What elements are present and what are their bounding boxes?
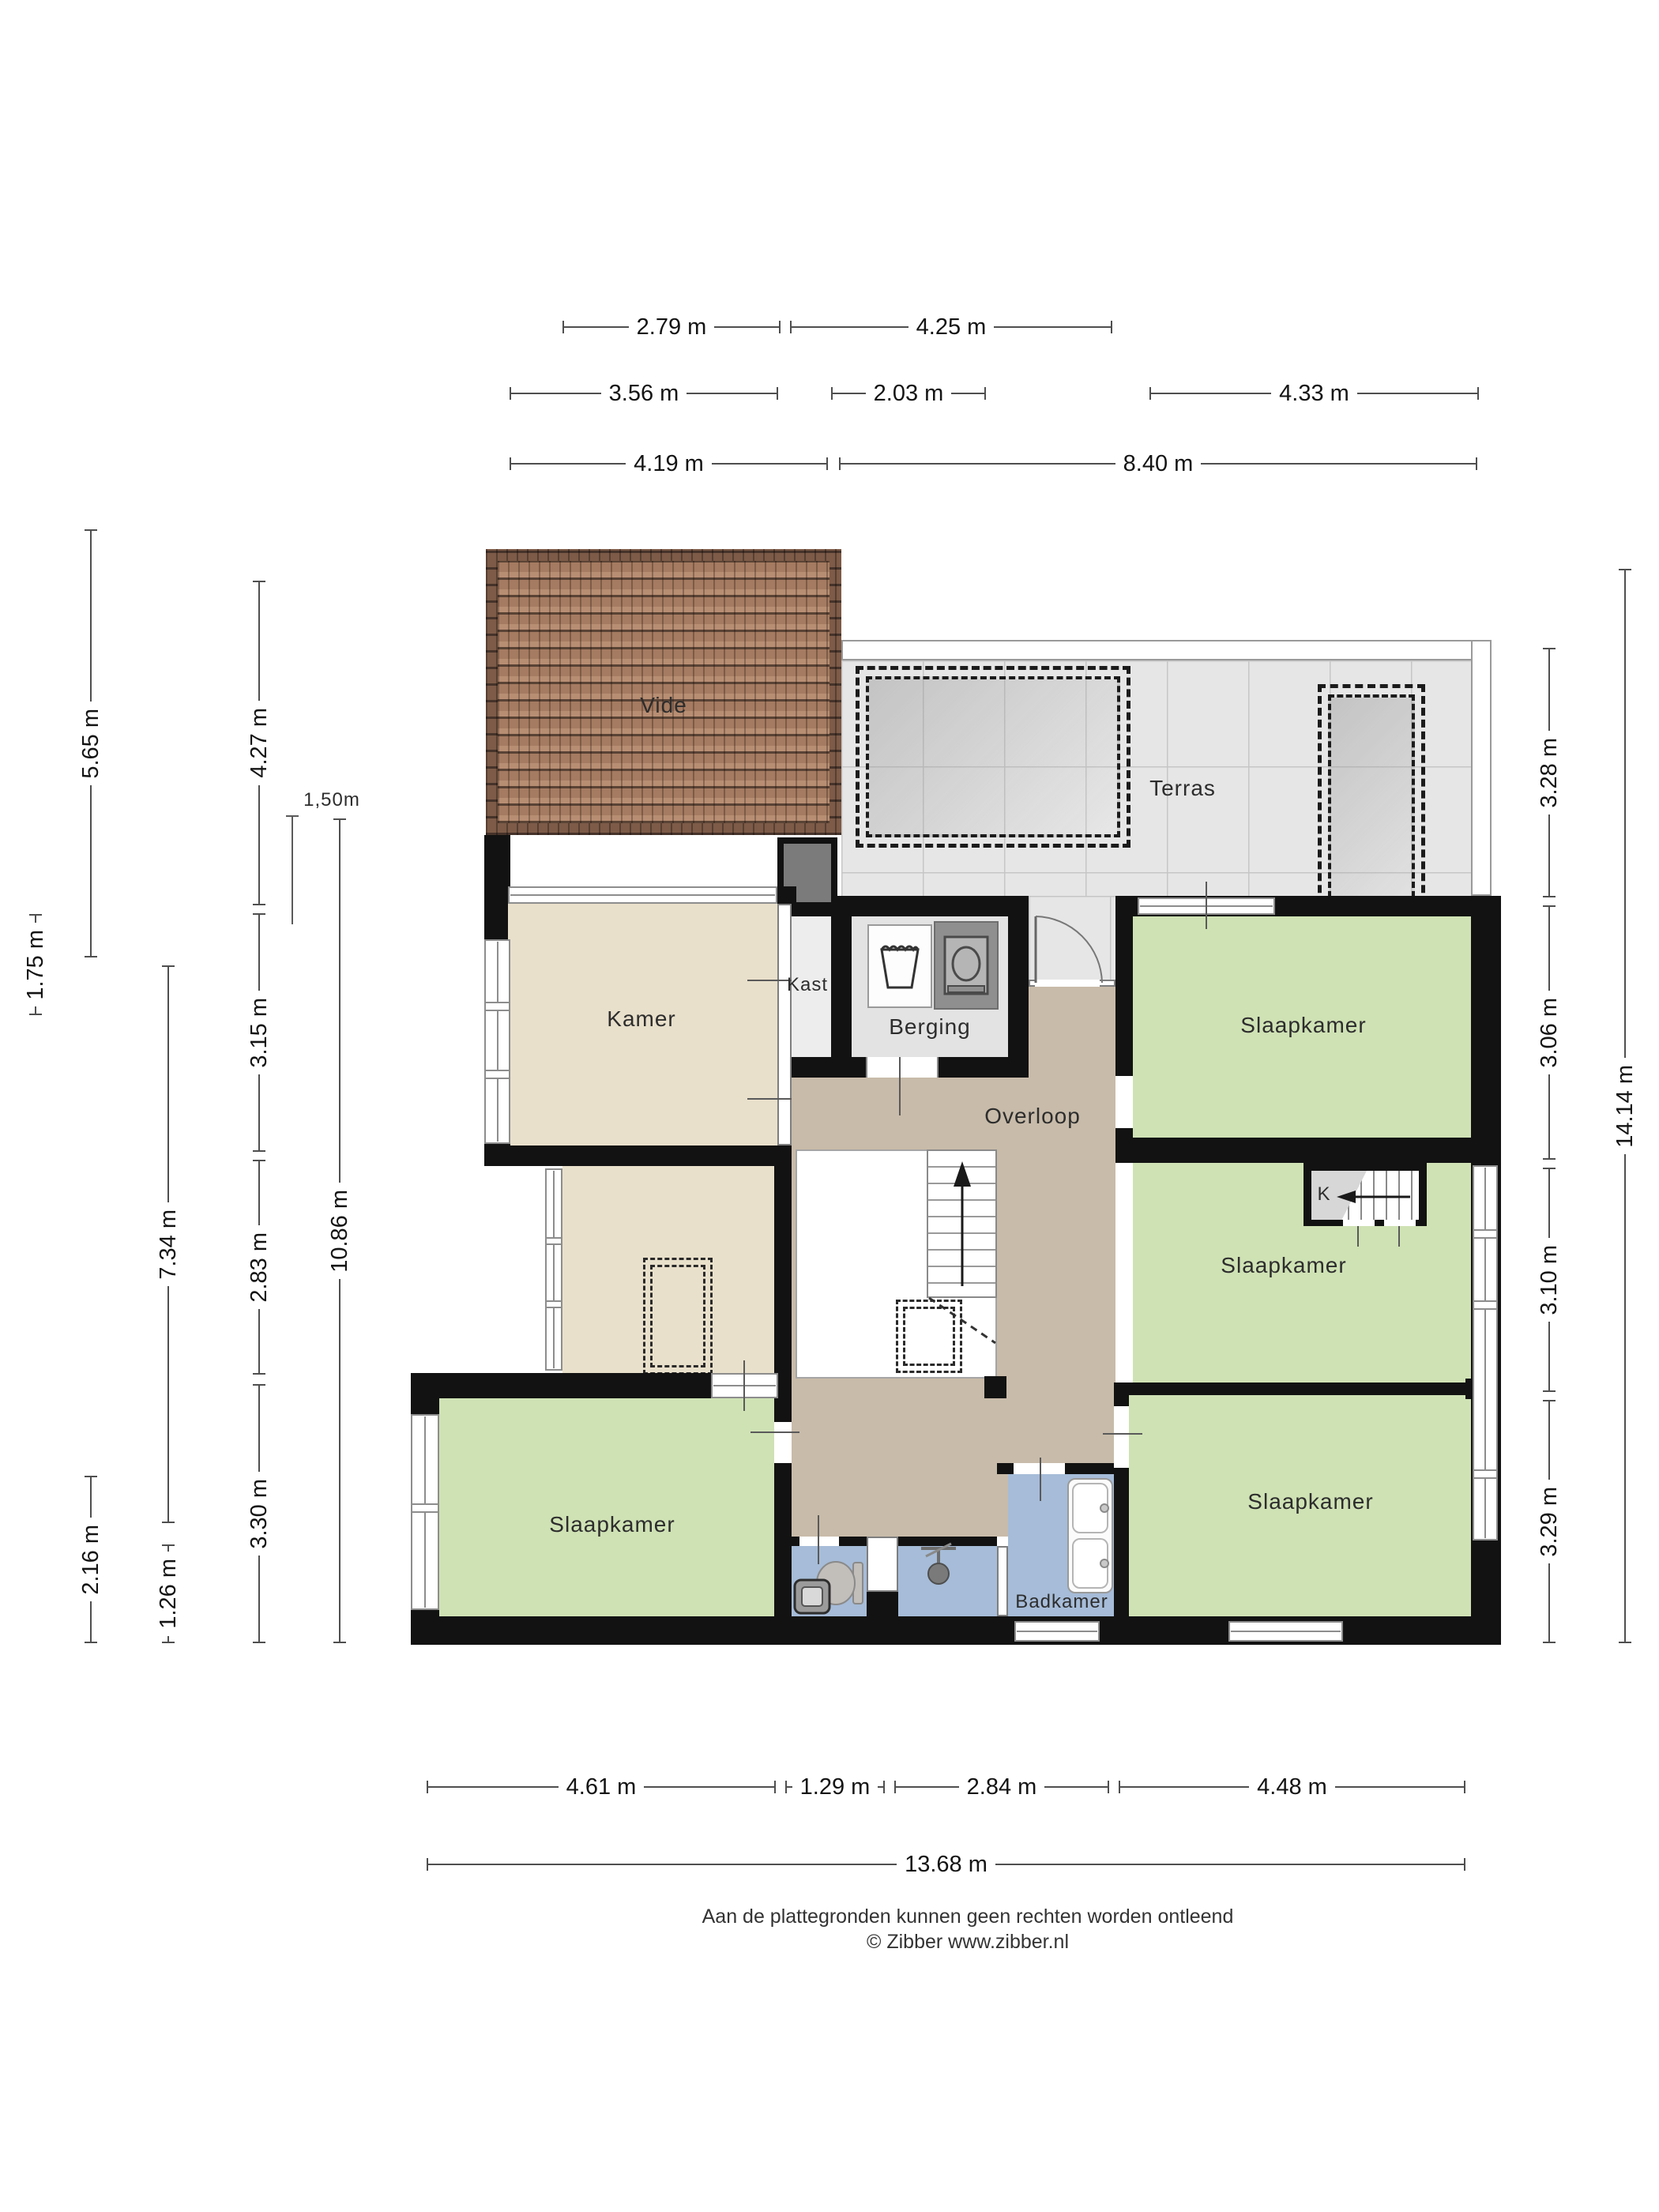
laundry-basket-icon [878,942,921,991]
height-marker-line [292,815,293,924]
dim-bottom-129: 1.29 m [785,1775,885,1799]
stairs-up-arrow-icon [952,1160,976,1290]
window-tick [743,1360,745,1411]
floorplan-canvas: Vide Terras Kamer Kast Berging Overloop … [0,0,1659,2212]
window-kamer-left [484,939,510,1144]
window-kamer-top [508,886,777,904]
window-mullion [484,1070,510,1079]
dim-bottom-284: 2.84 m [894,1775,1109,1799]
window-mullion [545,1300,562,1308]
dim-top-840: 8.40 m [839,452,1477,476]
room-overloop-corridor [1029,986,1115,1078]
dim-left-216: 2.16 m [79,1476,103,1643]
window-mullion [545,1237,562,1245]
room-label-slaapkamer-br: Slaapkamer [1247,1489,1373,1514]
room-label-badkamer: Badkamer [1015,1591,1108,1613]
height-marker-tick [286,815,299,817]
dim-right-1414: 14.14 m [1613,569,1637,1643]
dim-left-315: 3.15 m [247,913,271,1152]
dim-right-310: 3.10 m [1537,1168,1561,1392]
dim-left-427: 4.27 m [247,581,271,905]
double-sink-icon [1066,1477,1114,1594]
wall [484,835,510,939]
k-vent-tick [1357,1226,1359,1247]
room-label-slaapkamer-bl: Slaapkamer [549,1512,675,1537]
window-mullion [1473,1229,1498,1239]
room-label-slaapkamer-tr: Slaapkamer [1240,1013,1366,1038]
dim-left-175: 1.75 m [24,914,47,1015]
door-bl-slaapkamer [774,1422,792,1463]
wall-berging-left [831,916,852,1057]
wall-mid-br-divider [1114,1382,1467,1395]
door-toilet [799,1537,839,1546]
dim-top-356: 3.56 m [510,382,778,405]
door-tick [1040,1458,1041,1501]
wall-berging-right [1008,896,1029,1078]
height-marker-label: 1,50m [303,789,360,811]
washing-machine-icon [942,934,991,997]
shower-drain-icon [793,1578,831,1615]
door-berging [866,1057,939,1078]
window-zolderkamer-left [545,1168,562,1371]
k-closet-vent [1384,1220,1416,1226]
roof-vide-area [486,549,841,835]
k-closet-arrow-icon [1335,1189,1414,1205]
dim-bottom-1368: 13.68 m [427,1853,1465,1876]
dim-right-328: 3.28 m [1537,648,1561,897]
room-label-terras: Terras [1149,776,1216,801]
k-closet-vent [1343,1220,1375,1226]
window-bottom-br [1228,1621,1343,1642]
room-label-slaapkamer-mid: Slaapkamer [1221,1253,1346,1278]
k-vent-tick [1398,1226,1400,1247]
dim-bottom-448: 4.48 m [1119,1775,1465,1799]
wall-tr-bottom [1115,1138,1501,1163]
door-tick [747,1098,792,1100]
wall-stairwell-corner [984,1376,1006,1398]
room-label-overloop: Overloop [984,1104,1081,1129]
wall-kamer-kast-thin [777,904,792,1145]
room-label-kamer: Kamer [607,1006,675,1032]
dim-right-306: 3.06 m [1537,905,1561,1160]
door-tr-slaapkamer [1115,1076,1133,1128]
dim-left-1086: 10.86 m [328,818,352,1643]
wall-toilet-shower-stub [867,1592,898,1616]
dim-left-565: 5.65 m [79,529,103,957]
dim-left-330: 3.30 m [247,1384,271,1643]
door-tick [818,1515,819,1564]
door-tick [747,980,792,981]
wall-kamer-bottom [484,1145,792,1166]
dim-right-329: 3.29 m [1537,1400,1561,1643]
wall-toilet-shower-divider [867,1537,898,1592]
room-slaapkamer-bottom-left [439,1398,774,1616]
dim-top-433: 4.33 m [1149,382,1479,405]
copyright-text: © Zibber www.zibber.nl [276,1931,1659,1954]
dim-top-203: 2.03 m [831,382,986,405]
window-mullion [1473,1469,1498,1479]
dim-top-425: 4.25 m [790,315,1112,339]
terrace-railing-top [841,640,1492,660]
window-tick [1206,882,1207,929]
dim-top-419: 4.19 m [510,452,828,476]
door-br-slaapkamer [1114,1406,1129,1468]
furniture-dashed [643,1258,713,1375]
dim-bottom-461: 4.61 m [427,1775,776,1799]
terrace-railing-right [1471,640,1492,896]
room-label-berging: Berging [889,1014,971,1040]
window-mullion [1473,1300,1498,1310]
dim-left-126: 1.26 m [156,1544,180,1643]
window-bottom-badkamer [1014,1621,1100,1642]
dim-left-283: 2.83 m [247,1160,271,1375]
dim-left-734: 7.34 m [156,965,180,1523]
door-tick [1103,1433,1142,1435]
window-mullion [411,1503,439,1513]
wall-kamer-top-corner [777,886,796,904]
dim-top-279: 2.79 m [562,315,781,339]
room-label-kast: Kast [787,974,828,996]
room-label-vide: Vide [640,693,687,718]
shower-head-icon [915,1542,962,1586]
door-tick [899,1057,901,1115]
door-tick [750,1431,799,1433]
window-mullion [484,1002,510,1011]
vide-opening-dashed [896,1300,962,1373]
disclaimer-text: Aan de plattegronden kunnen geen rechten… [276,1905,1659,1928]
skylight-dashed-left [856,666,1130,848]
room-label-k: K [1317,1183,1330,1206]
roof-tiles [498,561,829,823]
wall-shower-badkamer-divider [997,1546,1008,1616]
door-terras-swing [1031,913,1106,986]
window-right-outer [1473,1165,1498,1540]
